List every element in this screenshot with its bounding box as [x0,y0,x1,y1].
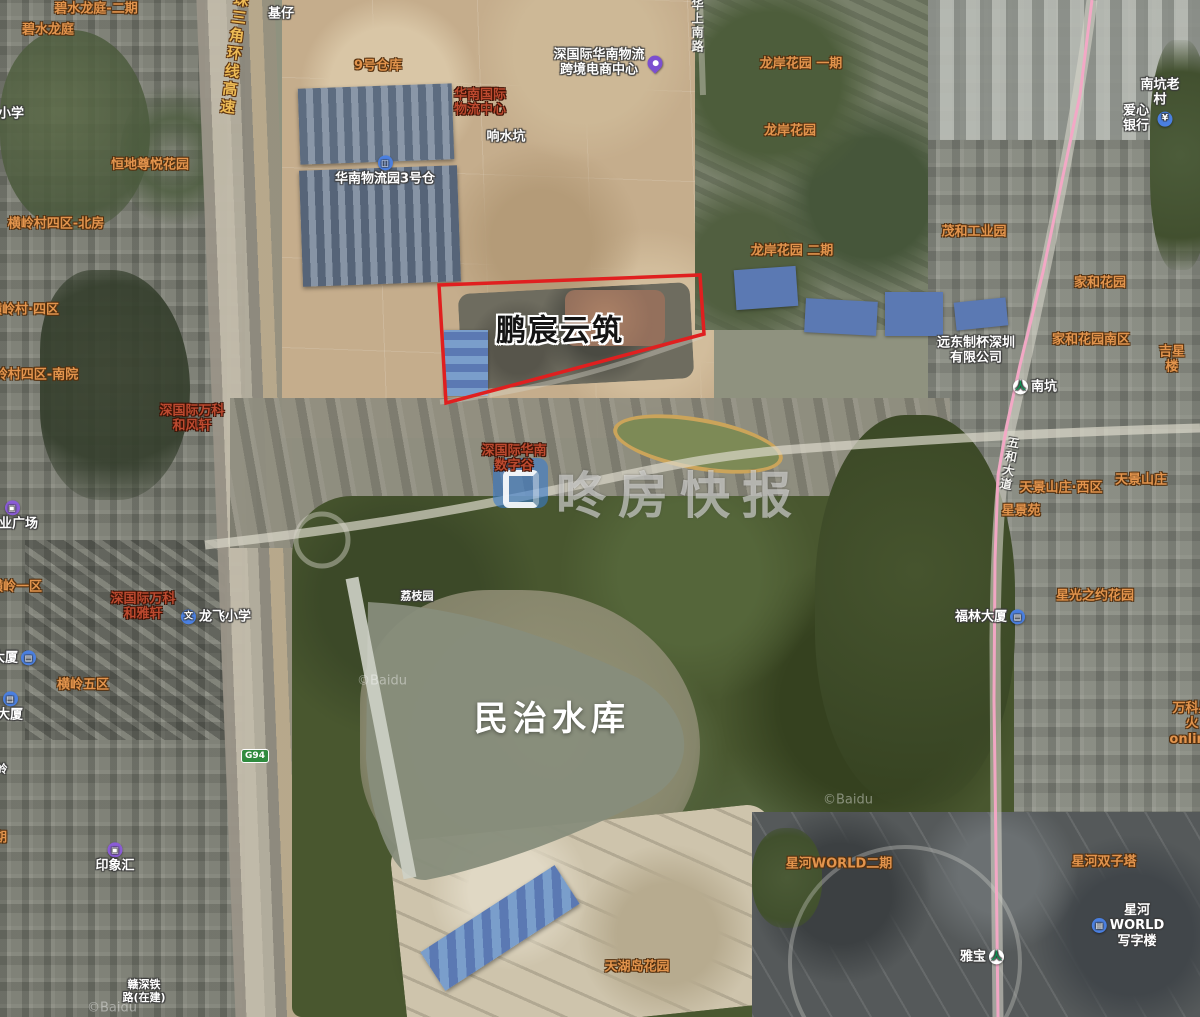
yabao-station-text: 雅宝 [960,949,986,964]
hengdizunyue-label[interactable]: 恒地尊悦花园 [111,157,189,172]
ling-cut-label[interactable]: 岭 [0,764,8,777]
yuandong-zhibei-label[interactable]: 远东制杯深圳 有限公司 [937,336,1015,367]
huanan-3cang-text: 华南物流园3号仓 [335,171,435,186]
fulin-dasha-text: 福林大厦 [955,609,1007,624]
building-texture [25,540,225,740]
bank-icon[interactable]: ¥ [1158,112,1173,127]
warehouse-roof [298,83,455,164]
blue-shed-roof [444,330,488,396]
sgj-hefengxuan-label[interactable]: 深国际万科 和风轩 [159,404,224,435]
jiahe-nanqu-label[interactable]: 家和花园南区 [1052,332,1130,347]
tianhudao-text: 天湖岛花园 [604,959,669,974]
xiangshuikeng-text: 响水坑 [486,129,525,144]
tianjing-shanzhuang-label[interactable]: 天景山庄 [1115,472,1167,487]
dasha-upper-label[interactable]: 大厦▤ [0,650,36,665]
sgj-shuzigu-text: 深国际华南 数字谷 [481,444,546,475]
yuandong-zhibei-text: 远东制杯深圳 有限公司 [937,336,1015,367]
huanan-3cang-label[interactable]: ◫华南物流园3号仓 [335,155,435,186]
fulin-dasha-label[interactable]: 福林大厦▤ [955,609,1025,624]
kuajing-center-text: 深国际华南物流 跨境电商中心 [553,48,644,79]
reservoir-shore [360,590,700,890]
tianhudao-label[interactable]: 天湖岛花园 [604,959,669,974]
aixin-bank-text: 爱心银行 [1118,104,1155,135]
hengdizunyue-text: 恒地尊悦花园 [111,157,189,172]
pengchen-yunzhu-label: 鹏宸云筑 [496,313,624,348]
lizhiyuan-label[interactable]: 荔枝园 [401,591,434,604]
cangku9-label[interactable]: 9号仓库 [354,58,402,73]
hengling-5qu-text: 横岭五区 [57,677,109,692]
huanan-wuliu-zx-text: 华南国际 物流中心 [454,88,506,119]
school-icon[interactable]: 文 [181,609,196,624]
jixinglou-label[interactable]: 吉星楼 [1158,345,1186,376]
ganshen-railway-text: 赣深铁 路(在建) [122,979,165,1005]
satellite-map-canvas[interactable]: 咚房快报 碧水龙庭-二期碧水龙庭恒地尊悦花园横岭村四区-北房9号仓库龙岸花园 一… [0,0,1200,1017]
maohe-gongyeyuan-label[interactable]: 茂和工业园 [941,224,1006,239]
interchange-ramp [296,514,348,566]
longfei-xiaoxue-text: 龙飞小学 [199,609,251,624]
urban-texture-right [928,0,1200,1017]
dam [352,578,410,878]
building-icon[interactable]: ▤ [1092,918,1107,933]
huashang-nanlu-text: 华上南路 [690,0,704,54]
ling-cut-text: 岭 [0,764,8,777]
greenery-patch [120,80,230,230]
jixinglou-text: 吉星楼 [1158,345,1186,376]
dasha-lower-text: 大厦 [0,707,23,722]
henglingcun-4qu-label[interactable]: 横岭村·四区 [0,302,59,317]
yabao-station-label[interactable]: 雅宝人 [960,949,1004,964]
reservoir-water [366,602,684,880]
jiahe-nanqu-text: 家和花园南区 [1052,332,1130,347]
xiaoxue-cut-label[interactable]: 小学 [0,106,24,121]
ring-road [790,847,1020,1017]
erqi-cut-label[interactable]: 二期 [0,830,7,845]
longan-1qi-label[interactable]: 龙岸花园 一期 [760,56,843,71]
lizhiyuan-text: 荔枝园 [401,591,434,604]
g94-badge: G94 [241,749,269,763]
longan-2qi-text: 龙岸花园 二期 [751,243,834,258]
xinghe-twin-text: 星河双子塔 [1071,854,1136,869]
sgj-heyaxuan-text: 深国际万科 和雅轩 [110,592,175,623]
hengling-1qu-label[interactable]: 横岭一区 [0,579,42,594]
building-icon[interactable]: ▤ [2,691,17,706]
nankeng-station-text: 南坑 [1031,379,1057,394]
nankeng-station-label[interactable]: 人南坑 [1013,379,1057,394]
hengling-5qu-label[interactable]: 横岭五区 [57,677,109,692]
greenery-patch [695,0,945,330]
xingjingyuan-text: 星景苑 [1001,503,1040,518]
baidu-copyright: ©Baidu [823,793,873,808]
yinxianghui-text: 印象汇 [95,858,134,873]
xinghe-twin-label[interactable]: 星河双子塔 [1071,854,1136,869]
bishuilongting-2-label[interactable]: 碧水龙庭-二期 [54,1,137,16]
store-icon[interactable]: ◫ [377,155,392,170]
hengling-1qu-text: 横岭一区 [0,579,42,594]
longfei-xiaoxue-label[interactable]: 文龙飞小学 [181,609,251,624]
shop-icon[interactable]: ▣ [107,842,122,857]
xingjingyuan-label[interactable]: 星景苑 [1001,503,1040,518]
jizai-text: 基仔 [268,6,294,21]
minzhi-shuiku-label[interactable]: 民治水库 [474,699,630,739]
tianjing-xiqu-text: 天景山庄·西区 [1020,480,1103,495]
blue-factory-roof [954,297,1009,330]
bishuilongting-label[interactable]: 碧水龙庭 [22,22,74,37]
sgj-shuzigu-label[interactable]: 深国际华南 数字谷 [481,444,546,475]
henglingcun4-nan-label[interactable]: 横岭村四区-南院 [0,367,78,382]
huanan-wuliu-zx-label[interactable]: 华南国际 物流中心 [454,88,506,119]
blue-factory-roof [885,292,943,336]
pin-icon[interactable] [644,52,665,73]
kuajing-center-label[interactable]: 深国际华南物流 跨境电商中心 [553,48,662,79]
metro-icon[interactable]: 人 [1013,379,1028,394]
shop-icon[interactable]: ▣ [4,500,19,515]
construction-site-south [389,803,790,1017]
forest [292,496,1014,1017]
shangye-guangchang-label[interactable]: ▣商业广场 [0,500,38,531]
zhusanjiao-expwy-text: 珠三角环线高速 [217,0,250,118]
blue-factory-roof [804,298,878,336]
xinghe-office-text: 星河WORLD写字楼 [1110,903,1164,949]
longan-text: 龙岸花园 [764,123,816,138]
cangku9-text: 9号仓库 [354,58,402,73]
huashang-nanlu-label: 华上南路 [690,0,704,54]
ganshen-railway-label[interactable]: 赣深铁 路(在建) [122,979,165,1005]
xinghe-world2-text: 星河WORLD二期 [786,856,892,871]
blue-factory-roof [420,865,579,991]
xinghe-world2-label[interactable]: 星河WORLD二期 [786,856,892,871]
zhusanjiao-expwy-label: 珠三角环线高速 [217,0,250,118]
longan-2qi-label[interactable]: 龙岸花园 二期 [751,243,834,258]
henglingcun4-bei-label[interactable]: 横岭村四区-北房 [8,216,104,231]
wanke-xinghuo-label[interactable]: 万科星火online [1169,701,1200,747]
xingguangzhiyue-text: 星光之约花园 [1056,588,1134,603]
bishuilongting-text: 碧水龙庭 [22,22,74,37]
wuhe-dadao-text: 五和大道 [997,435,1021,493]
longan-label[interactable]: 龙岸花园 [764,123,816,138]
pengchen-yunzhu-text: 鹏宸云筑 [496,313,624,348]
jiahe-huayuan-text: 家和花园 [1074,275,1126,290]
greenery-patch [1150,40,1200,270]
minzhi-shuiku-text: 民治水库 [474,699,630,739]
bishuilongting-2-text: 碧水龙庭-二期 [54,1,137,16]
sgj-hefengxuan-text: 深国际万科 和风轩 [159,404,224,435]
wanke-xinghuo-text: 万科星火online [1169,701,1200,747]
greenery-patch [0,30,150,230]
xiaoxue-cut-text: 小学 [0,106,24,121]
shangye-guangchang-text: 商业广场 [0,516,38,531]
jiahe-huayuan-label[interactable]: 家和花园 [1074,275,1126,290]
jizai-label[interactable]: 基仔 [268,6,294,21]
greenery-patch [752,828,822,928]
henglingcun-4qu-text: 横岭村·四区 [0,302,59,317]
watermark-text: 咚房快报 [556,456,816,528]
building-icon[interactable]: ▤ [1010,609,1025,624]
greenery-patch [40,270,190,500]
henglingcun4-nan-text: 横岭村四区-南院 [0,367,78,382]
dasha-lower-label[interactable]: ▤大厦 [0,691,23,722]
longan-1qi-text: 龙岸花园 一期 [760,56,843,71]
tianjing-shanzhuang-text: 天景山庄 [1115,472,1167,487]
dasha-upper-text: 大厦 [0,650,18,665]
sgj-heyaxuan-label[interactable]: 深国际万科 和雅轩 [110,592,175,623]
xiangshuikeng-label[interactable]: 响水坑 [486,129,525,144]
erqi-cut-text: 二期 [0,830,7,845]
maohe-gongyeyuan-text: 茂和工业园 [941,224,1006,239]
yinxianghui-label[interactable]: ▣印象汇 [95,842,134,873]
building-icon[interactable]: ▤ [21,650,36,665]
aixin-bank-label[interactable]: 爱心银行¥ [1118,104,1173,135]
baidu-copyright: ©Baidu [357,674,407,689]
xingguangzhiyue-label[interactable]: 星光之约花园 [1056,588,1134,603]
xinghe-office-label[interactable]: ▤星河WORLD写字楼 [1092,903,1164,949]
metro-icon[interactable]: 人 [989,949,1004,964]
tianjing-xiqu-label[interactable]: 天景山庄·西区 [1020,480,1103,495]
expressway-corridor [196,0,314,1017]
wuhe-dadao-label: 五和大道 [997,435,1021,493]
blue-factory-roof [734,266,799,310]
henglingcun4-bei-text: 横岭村四区-北房 [8,216,104,231]
